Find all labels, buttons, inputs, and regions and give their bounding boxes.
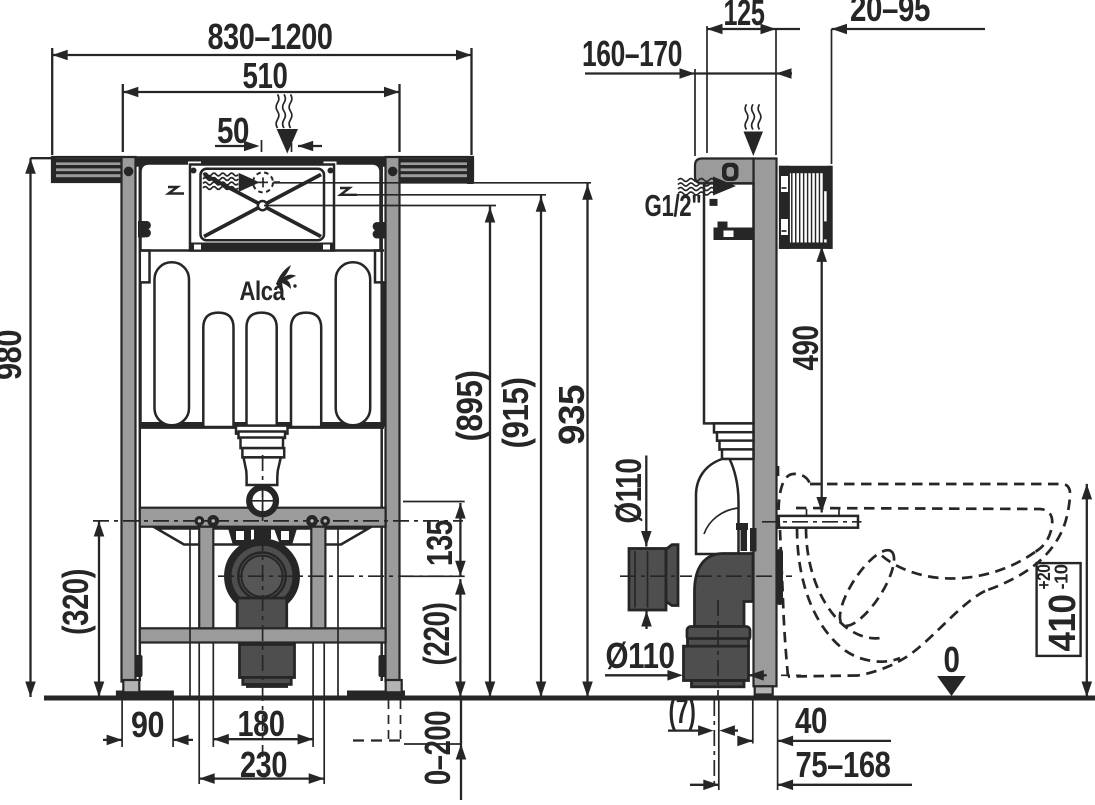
svg-text:160–170: 160–170 — [582, 33, 682, 74]
svg-text:50: 50 — [217, 110, 249, 151]
svg-text:980: 980 — [0, 330, 29, 380]
svg-text:40: 40 — [795, 700, 827, 741]
svg-text:G1/2": G1/2" — [645, 188, 702, 223]
svg-text:Ø110: Ø110 — [608, 459, 649, 524]
svg-text:(895): (895) — [449, 371, 490, 442]
svg-text:490: 490 — [785, 326, 826, 371]
svg-text:230: 230 — [240, 744, 287, 785]
svg-text:830–1200: 830–1200 — [208, 16, 333, 57]
svg-text:135: 135 — [419, 520, 460, 566]
svg-text:90: 90 — [131, 704, 164, 745]
svg-text:0: 0 — [944, 639, 960, 680]
svg-text:180: 180 — [238, 703, 285, 744]
svg-text:(320): (320) — [55, 569, 96, 635]
svg-text:Ø110: Ø110 — [606, 635, 675, 676]
svg-text:935: 935 — [551, 385, 592, 445]
svg-text:125: 125 — [724, 0, 765, 33]
svg-text:0–200: 0–200 — [417, 711, 458, 785]
svg-text:20–95: 20–95 — [850, 0, 930, 29]
svg-text:(7): (7) — [669, 690, 696, 731]
svg-text:(220): (220) — [416, 603, 457, 666]
svg-text:-10: -10 — [1052, 564, 1072, 589]
svg-text:75–168: 75–168 — [796, 744, 891, 785]
svg-text:410: 410 — [1042, 595, 1084, 652]
svg-text:510: 510 — [243, 55, 288, 96]
svg-text:(915): (915) — [495, 378, 536, 449]
